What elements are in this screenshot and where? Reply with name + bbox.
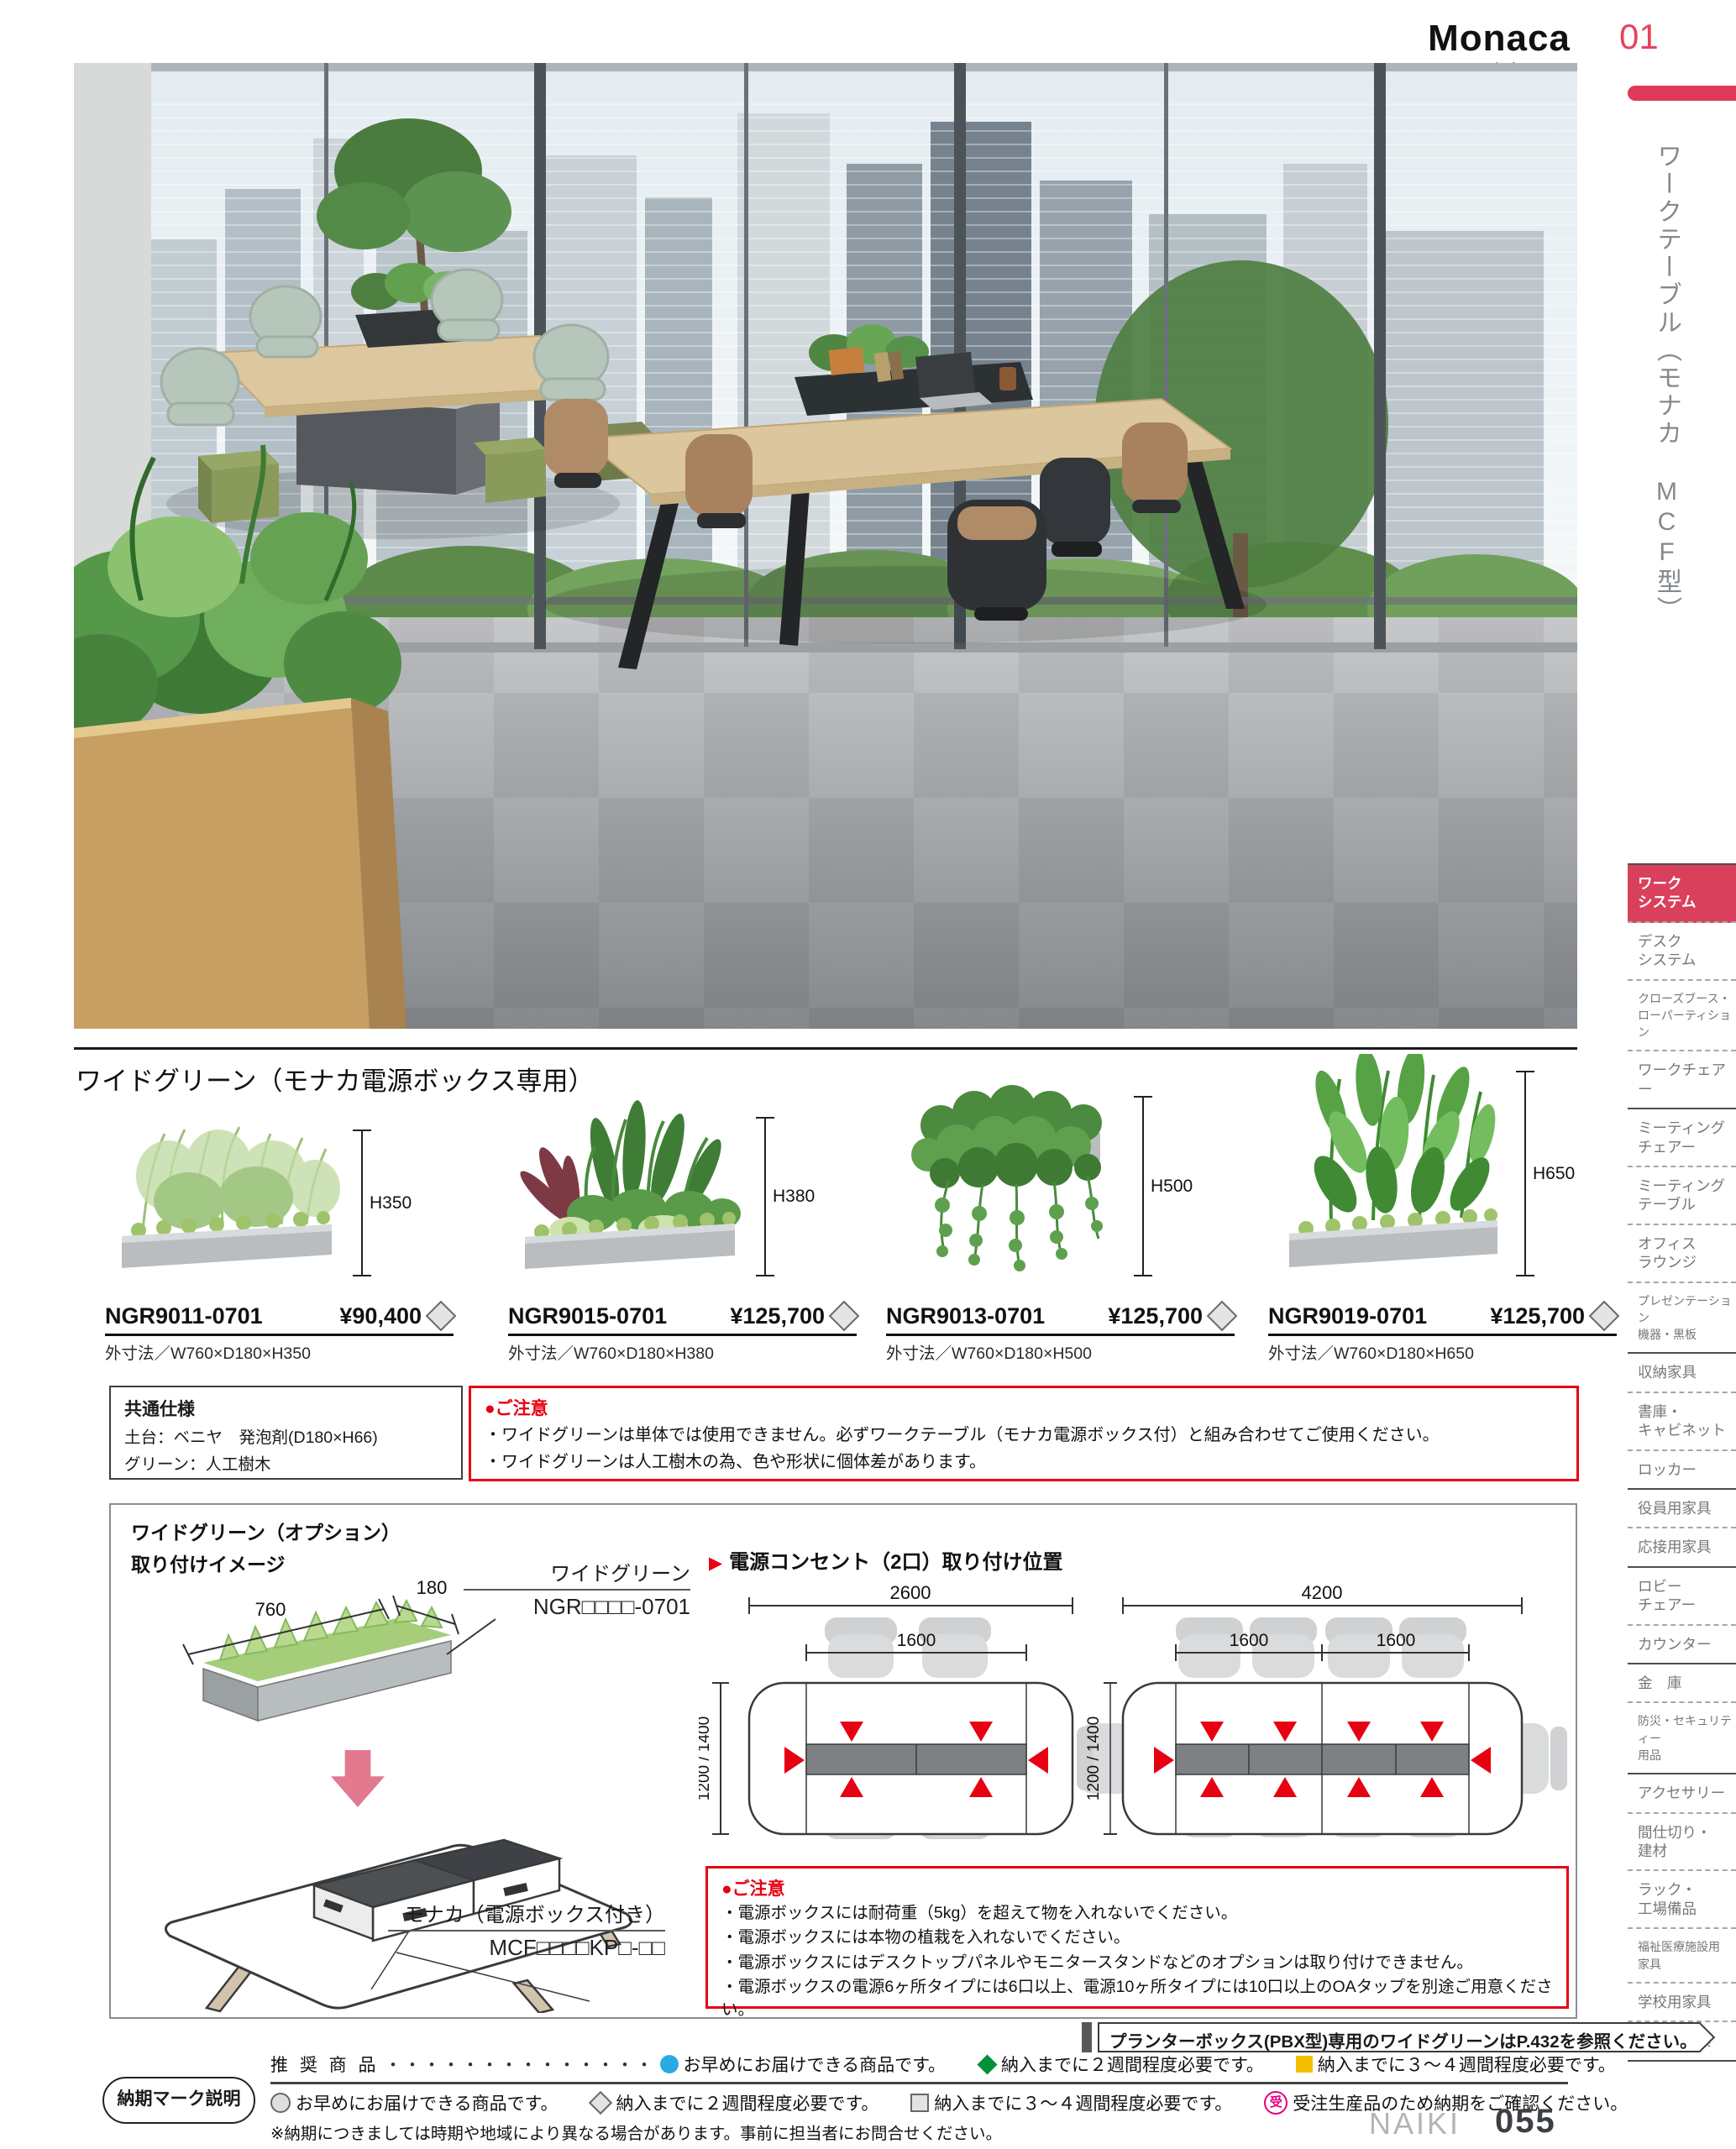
sidebar-item-label: 福祉医療施設用 家具 [1638,1940,1720,1970]
notice-title: ●ご注意 [721,1875,1553,1900]
legend-dots: ・・・・・・・・・・・・・・ [385,2052,655,2077]
sidebar-item-desk-system[interactable]: デスク システム [1628,923,1736,981]
notice-line: ・ワイドグリーンは人工樹木の為、色や形状に個体差があります。 [485,1450,1563,1474]
sidebar-item-label: 書庫・ キャビネット [1638,1403,1726,1439]
spec-box: 共通仕様 土台：ベニヤ 発泡剤(D180×H66) グリーン：人工樹木 [109,1386,463,1480]
legend-text: 納入までに３～４週間程度必要です。 [934,2090,1232,2115]
sidebar-item-label: ミーティング チェアー [1638,1119,1725,1155]
legend-text: 納入までに２週間程度必要です。 [616,2090,878,2115]
product-code: NGR9019-0701 [1268,1303,1427,1329]
monaca-label-block: モナカ（電源ボックス付き） MCF□□□□KP□-□□ [388,1898,665,1961]
product-card-ngr9011: H350 NGR9011-0701 ¥90,400 外寸法／W760×D180×… [105,1092,458,1373]
delivery-note: ※納期につきましては時期や地域により異なる場合があります。事前に担当者にお問合せ… [270,2120,1002,2144]
product-card-ngr9019: H650 NGR9019-0701 ¥125,700 外寸法／W760×D180… [1268,1092,1621,1373]
notice-line: ・電源ボックスには本物の植栽を入れないでください。 [721,1926,1553,1949]
sidebar-item-meeting-chair[interactable]: ミーティング チェアー [1628,1109,1736,1167]
delivery-mark-diamond-icon [426,1300,457,1331]
plant-image [109,1109,353,1276]
outlet-position-diagram-2600: 2600 1600 1200 / 1400 [699,1582,1127,1859]
legend-divider [270,2082,1568,2084]
notice-line: ・電源ボックスにはデスクトップパネルやモニタースタンドなどのオプションは取り付け… [721,1952,1553,1974]
sidebar-item-label: カウンター [1638,1636,1712,1653]
catalog-page: Monaca モナカ 01 ワークテーブル（モナカ MCF型） ワーク システム… [0,0,1736,2149]
gray-diamond-icon [589,2091,612,2115]
page-tab [1628,86,1736,101]
wide-green-code: NGR□□□□-0701 [464,1594,690,1620]
naiki-logo: NAIKI [1369,2106,1461,2141]
plant-image [512,1096,756,1276]
diagram-title-1: ワイドグリーン（オプション） [131,1517,401,1545]
product-price: ¥90,400 [339,1303,422,1329]
sidebar-item-label: オフィス ラウンジ [1638,1235,1697,1271]
yellow-square-icon [1296,2056,1313,2073]
sidebar-item-label: ミーティング テーブル [1638,1177,1725,1213]
page-number-top: 01 [1619,17,1659,57]
section-rule [74,1047,1577,1050]
dimB-total: 4200 [1302,1582,1343,1603]
sidebar-item-label: 学校用家具 [1638,1994,1712,2010]
notice-line: ・電源ボックスの電源6ヶ所タイプには6口以上、電源10ヶ所タイプには10口以上の… [721,1976,1553,2022]
sidebar-item-work-chair[interactable]: ワークチェアー [1628,1051,1736,1109]
product-code-row: NGR9015-0701 ¥125,700 [508,1303,857,1336]
sidebar-nav: ワーク システム デスク システム クローズブース・ ローパーティション ワーク… [1628,863,1736,2062]
down-arrow-icon [331,1750,385,1807]
sidebar-item-work-system[interactable]: ワーク システム [1628,865,1736,923]
sidebar-item-cabinet[interactable]: 書庫・ キャビネット [1628,1393,1736,1451]
product-card-ngr9013: H500 NGR9013-0701 ¥125,700 外寸法／W760×D180… [886,1092,1239,1373]
legend-text: お早めにお届けできる商品です。 [684,2052,946,2077]
sidebar-item-booth-partition[interactable]: クローズブース・ ローパーティション [1628,981,1736,1052]
sidebar-item-office-lounge[interactable]: オフィス ラウンジ [1628,1225,1736,1283]
monaca-table-code: MCF□□□□KP□-□□ [388,1935,665,1961]
red-triangle-icon: ▶ [709,1554,722,1573]
notice-box-2: ●ご注意 ・電源ボックスには耐荷重（5kg）を超えて物を入れないでください。 ・… [705,1866,1569,2009]
spec-line: 土台：ベニヤ 発泡剤(D180×H66) [124,1423,448,1448]
product-code: NGR9015-0701 [508,1303,667,1329]
sidebar-item-label: ロッカー [1638,1461,1697,1478]
hero-photo [74,63,1577,1029]
sidebar-item-label: プレゼンテーション 機器・黒板 [1638,1294,1732,1342]
notice-line: ・電源ボックスには耐荷重（5kg）を超えて物を入れないでください。 [721,1902,1553,1925]
sidebar-item-label: 間仕切り・ 建材 [1638,1824,1712,1859]
product-price: ¥125,700 [1490,1303,1585,1329]
dimB-depth: 1200 / 1400 [1085,1717,1103,1800]
sidebar-item-executive[interactable]: 役員用家具 [1628,1490,1736,1528]
spec-line: グリーン：人工樹木 [124,1450,448,1475]
reference-banner: プランターボックス(PBX型)専用のワイドグリーンはP.432を参照ください。 [1082,2022,1701,2052]
sidebar-item-security[interactable]: 防災・セキュリティー 用品 [1628,1703,1736,1774]
sidebar-item-label: ワークチェアー [1638,1061,1726,1097]
sidebar-item-label: 金 庫 [1638,1675,1682,1691]
notice-title: ●ご注意 [485,1395,1563,1420]
sidebar-item-presentation[interactable]: プレゼンテーション 機器・黒板 [1628,1283,1736,1355]
gray-circle-icon [270,2093,291,2113]
legend-text: 納入までに２週間程度必要です。 [1001,2052,1264,2077]
legend-text: 納入までに３～４週間程度必要です。 [1318,2052,1616,2077]
height-label: H500 [1151,1177,1193,1197]
product-code-row: NGR9013-0701 ¥125,700 [886,1303,1235,1336]
sidebar-item-storage[interactable]: 収納家具 [1628,1354,1736,1392]
sidebar-item-counter[interactable]: カウンター [1628,1626,1736,1664]
sidebar-item-label: ワーク システム [1638,875,1696,910]
wide-green-label-block: ワイドグリーン NGR□□□□-0701 [464,1557,690,1620]
sidebar-item-label: デスク システム [1638,933,1696,968]
height-dimension: H650 [1524,1071,1526,1276]
outlet-position-title: ▶電源コンセント（2口）取り付け位置 [709,1545,1063,1575]
outlet-title-text: 電源コンセント（2口）取り付け位置 [729,1551,1062,1574]
height-dimension: H500 [1142,1096,1144,1276]
height-label: H380 [773,1187,815,1207]
dimA-total: 2600 [890,1582,931,1603]
product-dimensions: 外寸法／W760×D180×H380 [508,1339,714,1364]
sidebar-item-rack-factory[interactable]: ラック・ 工場備品 [1628,1871,1736,1929]
sidebar-item-locker[interactable]: ロッカー [1628,1451,1736,1490]
dimA-depth: 1200 / 1400 [699,1717,713,1800]
sidebar-item-meeting-table[interactable]: ミーティング テーブル [1628,1167,1736,1225]
banner-text: プランターボックス(PBX型)専用のワイドグリーンはP.432を参照ください。 [1098,2022,1701,2052]
product-code-row: NGR9019-0701 ¥125,700 [1268,1303,1617,1336]
product-code: NGR9013-0701 [886,1303,1045,1329]
legend-row-1: 推 奨 商 品 ・・・・・・・・・・・・・・ お早めにお届けできる商品です。 納… [270,2052,1616,2077]
product-dimensions: 外寸法／W760×D180×H350 [105,1339,311,1364]
page-number-footer: 055 [1495,2103,1556,2141]
delivery-mark-diamond-icon [829,1300,860,1331]
sidebar-item-label: 収納家具 [1638,1364,1697,1381]
height-dimension: H380 [764,1117,766,1276]
plant-image [1272,1054,1516,1276]
sidebar-item-welfare[interactable]: 福祉医療施設用 家具 [1628,1929,1736,1984]
product-code-row: NGR9011-0701 ¥90,400 [105,1303,454,1336]
outlet-position-diagram-4200: 4200 1600 1600 1200 / 1400 [1077,1582,1568,1859]
sidebar-item-label: 応接用家具 [1638,1538,1712,1555]
dim-760: 760 [255,1599,286,1620]
height-label: H350 [370,1193,412,1213]
gray-square-icon [910,2094,929,2112]
sidebar-item-safe[interactable]: 金 庫 [1628,1664,1736,1703]
sidebar-item-label: ラック・ 工場備品 [1638,1881,1697,1916]
delivery-mark-diamond-icon [1589,1300,1620,1331]
height-label: H650 [1533,1164,1575,1184]
side-title: ワークテーブル（モナカ MCF型） [1653,143,1681,815]
product-price: ¥125,700 [730,1303,825,1329]
notice-box: ●ご注意 ・ワイドグリーンは単体では使用できません。必ずワークテーブル（モナカ電… [469,1386,1579,1481]
banner-bar [1082,2022,1092,2052]
delivery-mark-diamond-icon [1207,1300,1238,1331]
sidebar-item-reception[interactable]: 応接用家具 [1628,1528,1736,1567]
product-row: H350 NGR9011-0701 ¥90,400 外寸法／W760×D180×… [74,1092,1577,1373]
sidebar-item-lobby-chair[interactable]: ロビー チェアー [1628,1568,1736,1626]
product-card-ngr9015: H380 NGR9015-0701 ¥125,700 外寸法／W760×D180… [508,1092,861,1373]
sidebar-item-label: クローズブース・ ローパーティション [1638,992,1731,1040]
dimB-inner1: 1600 [1230,1631,1269,1650]
dim-180: 180 [417,1577,448,1598]
delivery-legend-title: 納期マーク説明 [102,2077,255,2124]
product-price: ¥125,700 [1108,1303,1203,1329]
wide-green-label: ワイドグリーン [464,1557,690,1591]
attachment-diagram-box: ワイドグリーン（オプション） 取り付けイメージ 760 180 [109,1503,1577,2019]
sidebar-item-label: 役員用家具 [1638,1500,1712,1517]
brand-name: Monaca [1419,20,1579,57]
sidebar-item-label: 防災・セキュリティー 用品 [1638,1714,1732,1762]
order-production-icon: 受 [1264,2091,1288,2115]
product-dimensions: 外寸法／W760×D180×H500 [886,1339,1092,1364]
monaca-table-label: モナカ（電源ボックス付き） [388,1898,665,1931]
plant-image [890,1079,1134,1276]
recommended-label: 推 奨 商 品 [270,2052,380,2077]
dimB-inner2: 1600 [1377,1631,1416,1650]
dimA-inner: 1600 [897,1631,936,1650]
product-dimensions: 外寸法／W760×D180×H650 [1268,1339,1474,1364]
product-code: NGR9011-0701 [105,1303,263,1329]
sidebar-item-school[interactable]: 学校用家具 [1628,1984,1736,2022]
blue-circle-icon [660,2055,679,2073]
notice-line: ・ワイドグリーンは単体では使用できません。必ずワークテーブル（モナカ電源ボックス… [485,1423,1563,1447]
sidebar-item-label: アクセサリー [1638,1785,1725,1801]
sidebar-item-accessory[interactable]: アクセサリー [1628,1774,1736,1813]
legend-text: お早めにお届けできる商品です。 [296,2090,558,2115]
sidebar-item-partition-material[interactable]: 間仕切り・ 建材 [1628,1814,1736,1872]
sidebar-item-label: ロビー チェアー [1638,1578,1696,1613]
green-diamond-icon [977,2054,997,2074]
height-dimension: H350 [361,1130,363,1276]
spec-title: 共通仕様 [124,1396,448,1421]
planter-illustration: 760 180 [144,1564,497,1740]
